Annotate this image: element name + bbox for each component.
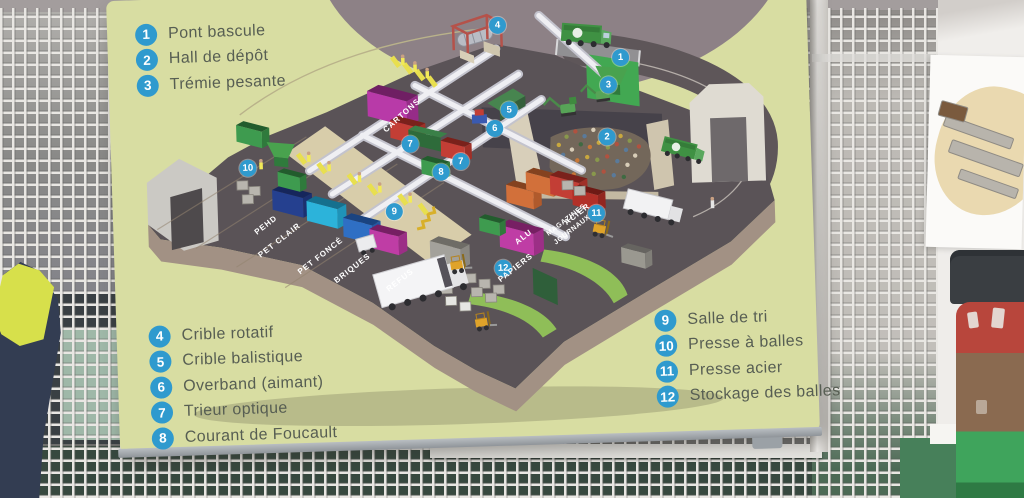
legend-label: Crible balistique (182, 348, 303, 370)
legend-label: Overband (aimant) (183, 373, 324, 395)
legend-label: Pont bascule (168, 22, 266, 43)
legend-number-badge: 8 (151, 427, 174, 450)
legend-label: Presse à balles (688, 333, 804, 355)
wall-poster (926, 55, 1024, 249)
facility-sign: 1 2 3 4 5 6 7 7 8 9 10 11 12 PEHD PET CL… (106, 0, 820, 453)
legend-item: 3Trémie pesante (136, 69, 286, 99)
legend-number-badge: 1 (135, 23, 158, 46)
legend-bottom-right: 9Salle de tri 10Presse à balles 11Presse… (654, 302, 841, 410)
legend-label: Salle de tri (687, 308, 768, 329)
waste-bin-lid (950, 250, 1024, 304)
container-green-topleft (236, 120, 270, 149)
legend-top-left: 1Pont bascule 2Hall de dépôt 3Trémie pes… (135, 18, 287, 99)
legend-number-badge: 10 (655, 335, 678, 358)
legend-label: Trieur optique (184, 400, 288, 421)
waste-bin (950, 250, 1024, 498)
right-wall-ceiling (938, 0, 1024, 56)
legend-number-badge: 3 (136, 74, 159, 97)
legend-number-badge: 2 (136, 49, 159, 72)
legend-label: Stockage des balles (689, 382, 840, 405)
legend-label: Crible rotatif (181, 324, 273, 345)
legend-number-badge: 5 (149, 350, 172, 373)
legend-bottom-left: 4Crible rotatif 5Crible balistique 6Over… (148, 318, 337, 451)
legend-number-badge: 7 (151, 401, 174, 424)
legend-label: Courant de Foucault (185, 424, 338, 447)
legend-label: Hall de dépôt (169, 47, 269, 68)
legend-number-badge: 9 (654, 309, 677, 332)
legend-number-badge: 6 (150, 376, 173, 399)
fence-mid-rail (812, 54, 938, 62)
legend-number-badge: 11 (656, 360, 679, 383)
legend-label: Trémie pesante (169, 72, 286, 94)
legend-number-badge: 12 (656, 386, 679, 409)
legend-number-badge: 4 (148, 325, 171, 348)
legend-label: Presse acier (689, 359, 783, 380)
entrance-portal (689, 83, 766, 183)
waste-bin-body (956, 302, 1024, 498)
